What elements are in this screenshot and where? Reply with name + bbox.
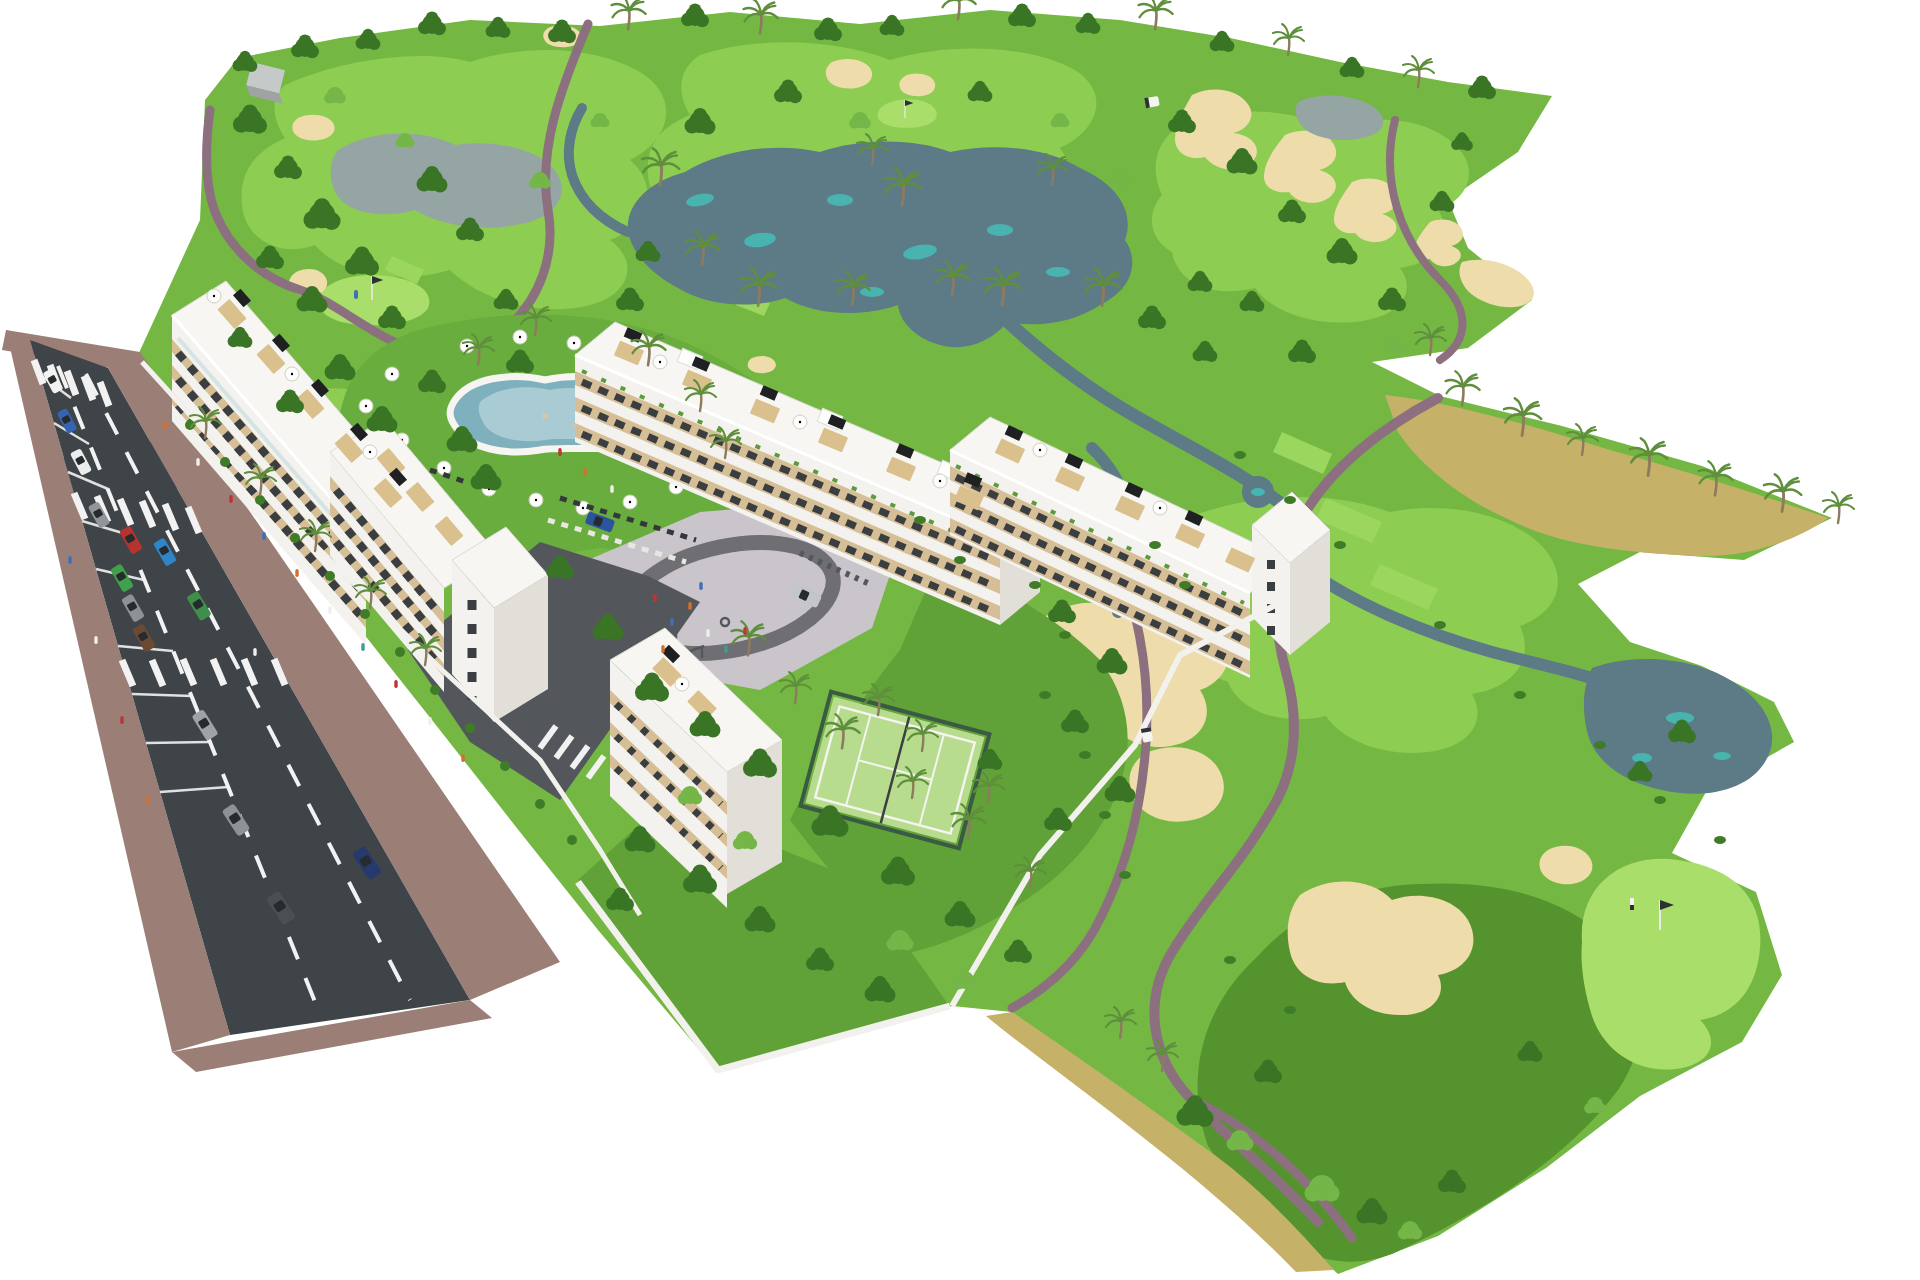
pond-mid-teal bbox=[1251, 488, 1265, 496]
golfer-west bbox=[354, 290, 358, 299]
render-canvas bbox=[0, 0, 1920, 1280]
scene bbox=[0, 0, 1920, 1280]
